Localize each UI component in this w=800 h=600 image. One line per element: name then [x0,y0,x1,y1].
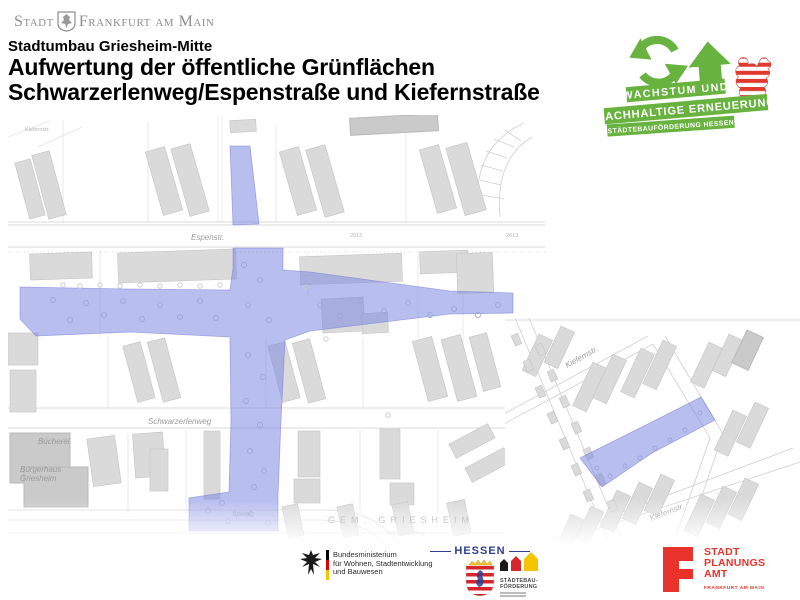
city-logo-name: Frankfurt am Main [79,13,215,31]
street-label-kiefernstrasse: Kiefernstr. [25,127,50,133]
bund-ministry-text: Bundesministerium für Wohnen, Stadtentwi… [333,551,433,577]
title-line-2: Schwarzerlenweg/Espenstraße und Kieferns… [8,80,540,105]
federal-eagle-icon [300,549,322,577]
staedtebaufoerderung-logo: STÄDTEBAU- FÖRDERUNG [500,549,546,598]
slide-subtitle: Stadtumbau Griesheim-Mitte [8,38,212,55]
frankfurt-city-logo: Stadt Frankfurt am Main [14,11,214,32]
staedtebaufoerderung-text: STÄDTEBAU- FÖRDERUNG [500,578,546,590]
recycling-arrows-icon [629,38,688,84]
slide-title: Aufwertung der öffentliche Grünflächen S… [8,55,540,105]
house-arrow-icon [686,40,732,84]
german-flag-bar [326,550,329,580]
stadtplanungsamt-logo: STADT PLANUNGS AMT FRANKFURT AM MAIN [663,547,765,594]
inset-map: Kiefernstr. Kiefernstr. [505,318,800,545]
three-houses-icon [500,549,540,571]
poi-label-buergerhaus: Bürgerhaus [20,465,61,474]
street-label-espenstrasse: Espenstr. [191,233,225,242]
footer-logo-row: Bundesministerium für Wohnen, Stadtentwi… [0,545,800,600]
title-line-1: Aufwertung der öffentliche Grünflächen [8,55,540,80]
wachstum-program-logo: WACHSTUM UND NACHHALTIGE ERNEUERUNG STÄD… [602,36,776,140]
frankfurt-crest-icon [57,11,76,32]
slide: Stadt Frankfurt am Main Stadtumbau Gries… [0,0,800,600]
stadtplanungsamt-mark-icon [663,547,695,592]
street-label-schwarzerlenweg: Schwarzerlenweg [148,417,212,426]
hessen-coat-of-arms-icon [465,559,495,597]
staedtebaufoerderung-smallprint [500,592,546,597]
parcel-label-2613: 2613 [506,233,518,239]
poi-label-griesheim: Griesheim [20,474,57,483]
stadtplanungsamt-text: STADT PLANUNGS AMT FRANKFURT AM MAIN [704,547,765,594]
parcel-label-2612: 2612 [350,233,362,239]
main-map: Espenstr. 2612 2613 Schwarzerlenweg Kief… [8,115,545,545]
poi-label-buecherei: Bücherei [38,437,70,446]
city-logo-prefix: Stadt [14,13,54,31]
bund-ministry-logo: Bundesministerium für Wohnen, Stadtentwi… [300,549,433,580]
